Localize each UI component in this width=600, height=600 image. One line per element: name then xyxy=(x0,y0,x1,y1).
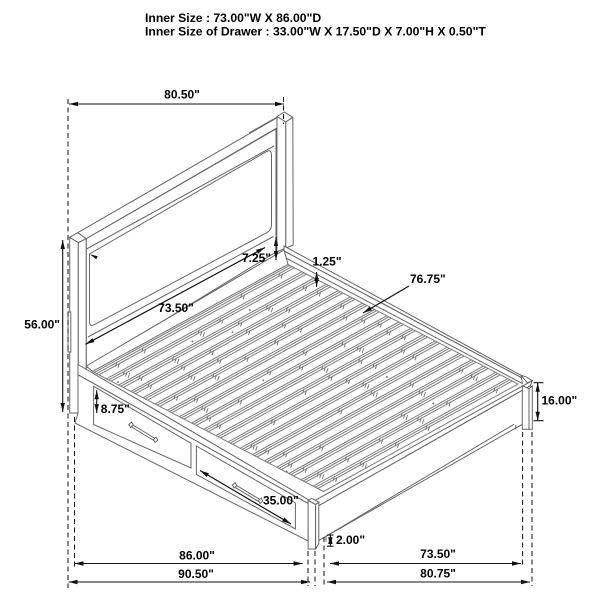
svg-text:73.50": 73.50" xyxy=(420,547,456,561)
svg-text:8.75": 8.75" xyxy=(101,402,130,416)
svg-text:1.25": 1.25" xyxy=(312,255,341,269)
svg-text:Inner Size : 73.00"W X 86.00"D: Inner Size : 73.00"W X 86.00"D xyxy=(145,11,321,25)
svg-text:86.00": 86.00" xyxy=(179,549,215,563)
svg-text:56.00": 56.00" xyxy=(24,318,60,332)
svg-text:2.00": 2.00" xyxy=(336,533,365,547)
svg-text:16.00": 16.00" xyxy=(542,394,578,408)
svg-text:35.00": 35.00" xyxy=(263,494,299,508)
svg-text:Inner Size of Drawer : 33.00"W: Inner Size of Drawer : 33.00"W X 17.50"D… xyxy=(145,25,486,39)
svg-text:90.50": 90.50" xyxy=(178,567,214,581)
svg-text:80.50": 80.50" xyxy=(164,88,200,102)
svg-text:76.75": 76.75" xyxy=(410,272,446,286)
svg-text:80.75": 80.75" xyxy=(420,567,456,581)
svg-text:73.50": 73.50" xyxy=(158,301,194,315)
svg-text:7.25": 7.25" xyxy=(242,251,271,265)
